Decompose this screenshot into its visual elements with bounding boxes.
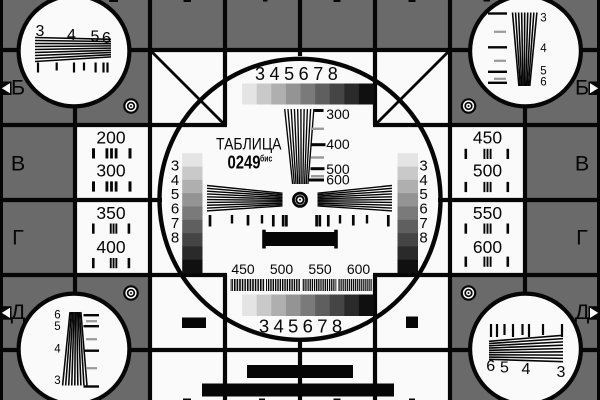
svg-text:3: 3: [255, 64, 265, 84]
svg-text:450: 450: [231, 261, 255, 277]
svg-text:Г: Г: [12, 226, 24, 250]
svg-text:В: В: [11, 152, 25, 176]
svg-text:350: 350: [96, 203, 125, 223]
svg-text:8: 8: [328, 64, 338, 84]
svg-text:бис: бис: [260, 154, 272, 165]
svg-text:Б: Б: [11, 76, 25, 100]
svg-text:Г: Г: [576, 226, 588, 250]
svg-text:4: 4: [540, 43, 547, 55]
svg-text:3: 3: [259, 316, 269, 337]
svg-text:4: 4: [67, 27, 76, 44]
svg-text:300: 300: [326, 106, 350, 122]
svg-text:6: 6: [299, 64, 309, 84]
svg-text:500: 500: [270, 261, 294, 277]
svg-text:ТАБЛИЦА: ТАБЛИЦА: [216, 136, 282, 154]
svg-text:3: 3: [557, 364, 566, 381]
svg-text:600: 600: [326, 172, 350, 188]
svg-text:600: 600: [473, 237, 502, 257]
svg-text:Д: Д: [575, 300, 590, 324]
svg-text:4: 4: [270, 64, 280, 84]
svg-text:6: 6: [102, 30, 111, 47]
svg-text:8: 8: [171, 229, 179, 246]
svg-text:4: 4: [522, 361, 531, 378]
svg-text:5: 5: [500, 360, 509, 377]
svg-text:5: 5: [288, 316, 298, 337]
svg-text:5: 5: [54, 321, 60, 333]
svg-text:3: 3: [54, 375, 60, 387]
svg-text:600: 600: [347, 261, 371, 277]
svg-text:550: 550: [308, 261, 332, 277]
svg-text:8: 8: [419, 229, 427, 246]
svg-text:200: 200: [96, 127, 125, 147]
svg-text:6: 6: [54, 310, 60, 322]
svg-text:8: 8: [332, 316, 342, 337]
svg-text:7: 7: [317, 316, 327, 337]
svg-text:450: 450: [473, 127, 502, 147]
svg-text:550: 550: [473, 203, 502, 223]
svg-text:Б: Б: [575, 76, 589, 100]
svg-text:400: 400: [326, 136, 350, 152]
svg-text:6: 6: [303, 316, 313, 337]
svg-text:3: 3: [36, 23, 45, 40]
svg-text:4: 4: [54, 344, 61, 356]
svg-text:500: 500: [473, 161, 502, 181]
svg-text:3: 3: [540, 12, 546, 24]
svg-text:6: 6: [486, 358, 495, 375]
svg-text:Д: Д: [11, 300, 26, 324]
svg-text:В: В: [575, 152, 589, 176]
svg-text:6: 6: [540, 76, 546, 88]
svg-text:0249: 0249: [228, 153, 261, 173]
svg-text:7: 7: [313, 64, 323, 84]
svg-text:5: 5: [91, 29, 100, 46]
svg-text:300: 300: [96, 161, 125, 181]
svg-text:5: 5: [284, 64, 294, 84]
svg-text:400: 400: [96, 237, 125, 257]
svg-text:4: 4: [273, 316, 283, 337]
